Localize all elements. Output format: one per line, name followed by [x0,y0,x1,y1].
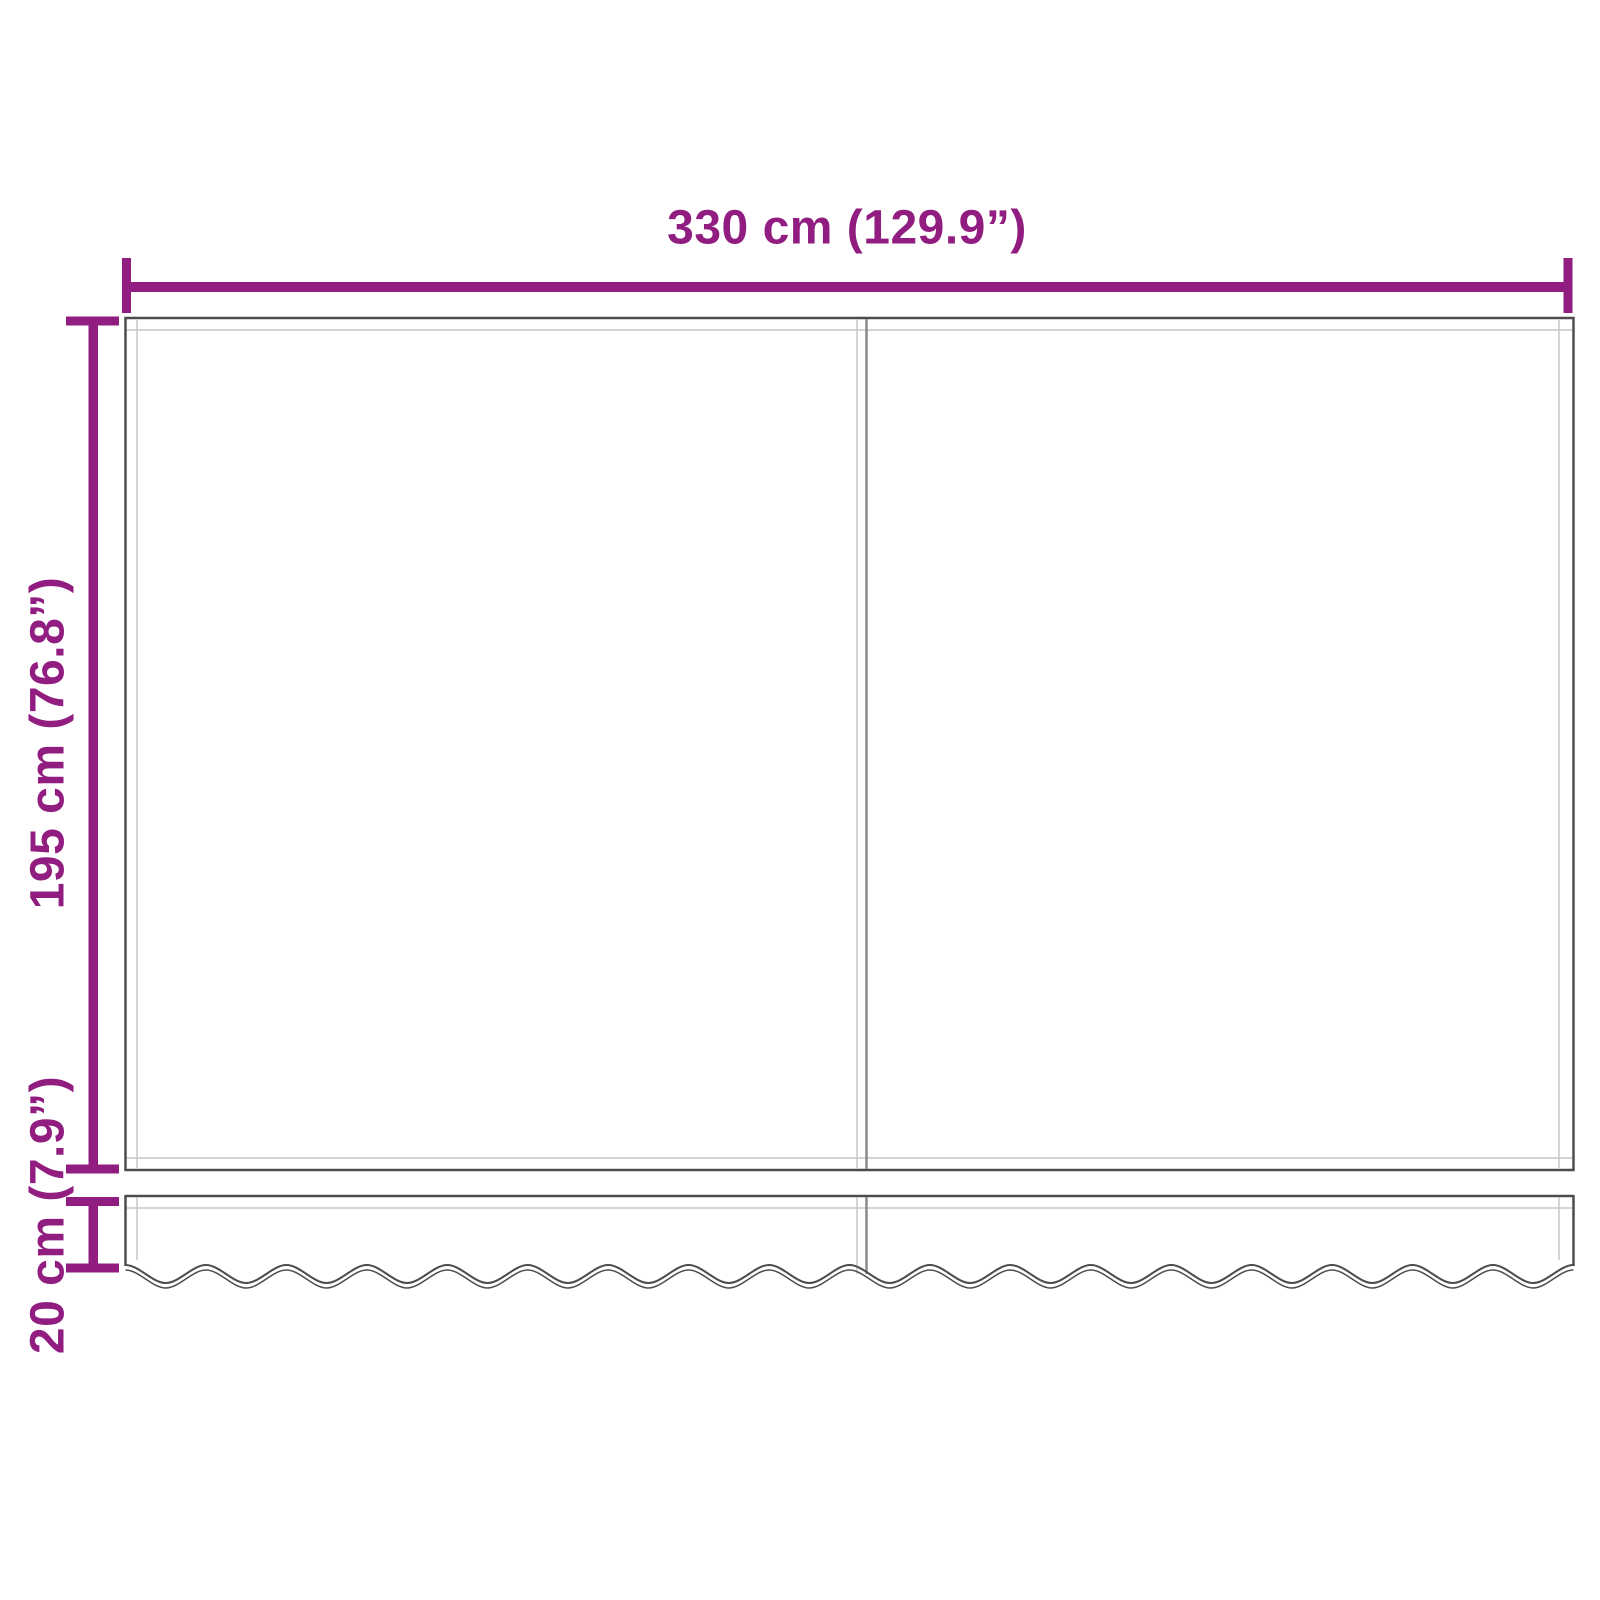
main-fabric-panel [126,318,1574,1170]
main-panel-border [126,318,1574,1170]
awning-fabric-dimension-diagram: 330 cm (129.9”) 195 cm (76.8”) 20 cm (7.… [0,0,1600,1600]
width-dimension [122,258,1573,313]
height-dimension-top-cap [66,317,119,326]
valance-wave-outer [126,1265,1574,1283]
valance-dimension-line [89,1201,99,1268]
width-dimension-label: 330 cm (129.9”) [667,201,1027,256]
valance-wave-inner [126,1270,1574,1288]
height-dimension-label: 195 cm (76.8”) [21,577,76,910]
width-dimension-left-cap [122,258,131,313]
width-dimension-right-cap [1564,258,1573,313]
valance-strip [126,1195,1574,1288]
width-dimension-line [126,282,1568,292]
height-dimension-line [89,321,99,1169]
valance-height-dimension-label: 20 cm (7.9”) [21,1076,76,1354]
